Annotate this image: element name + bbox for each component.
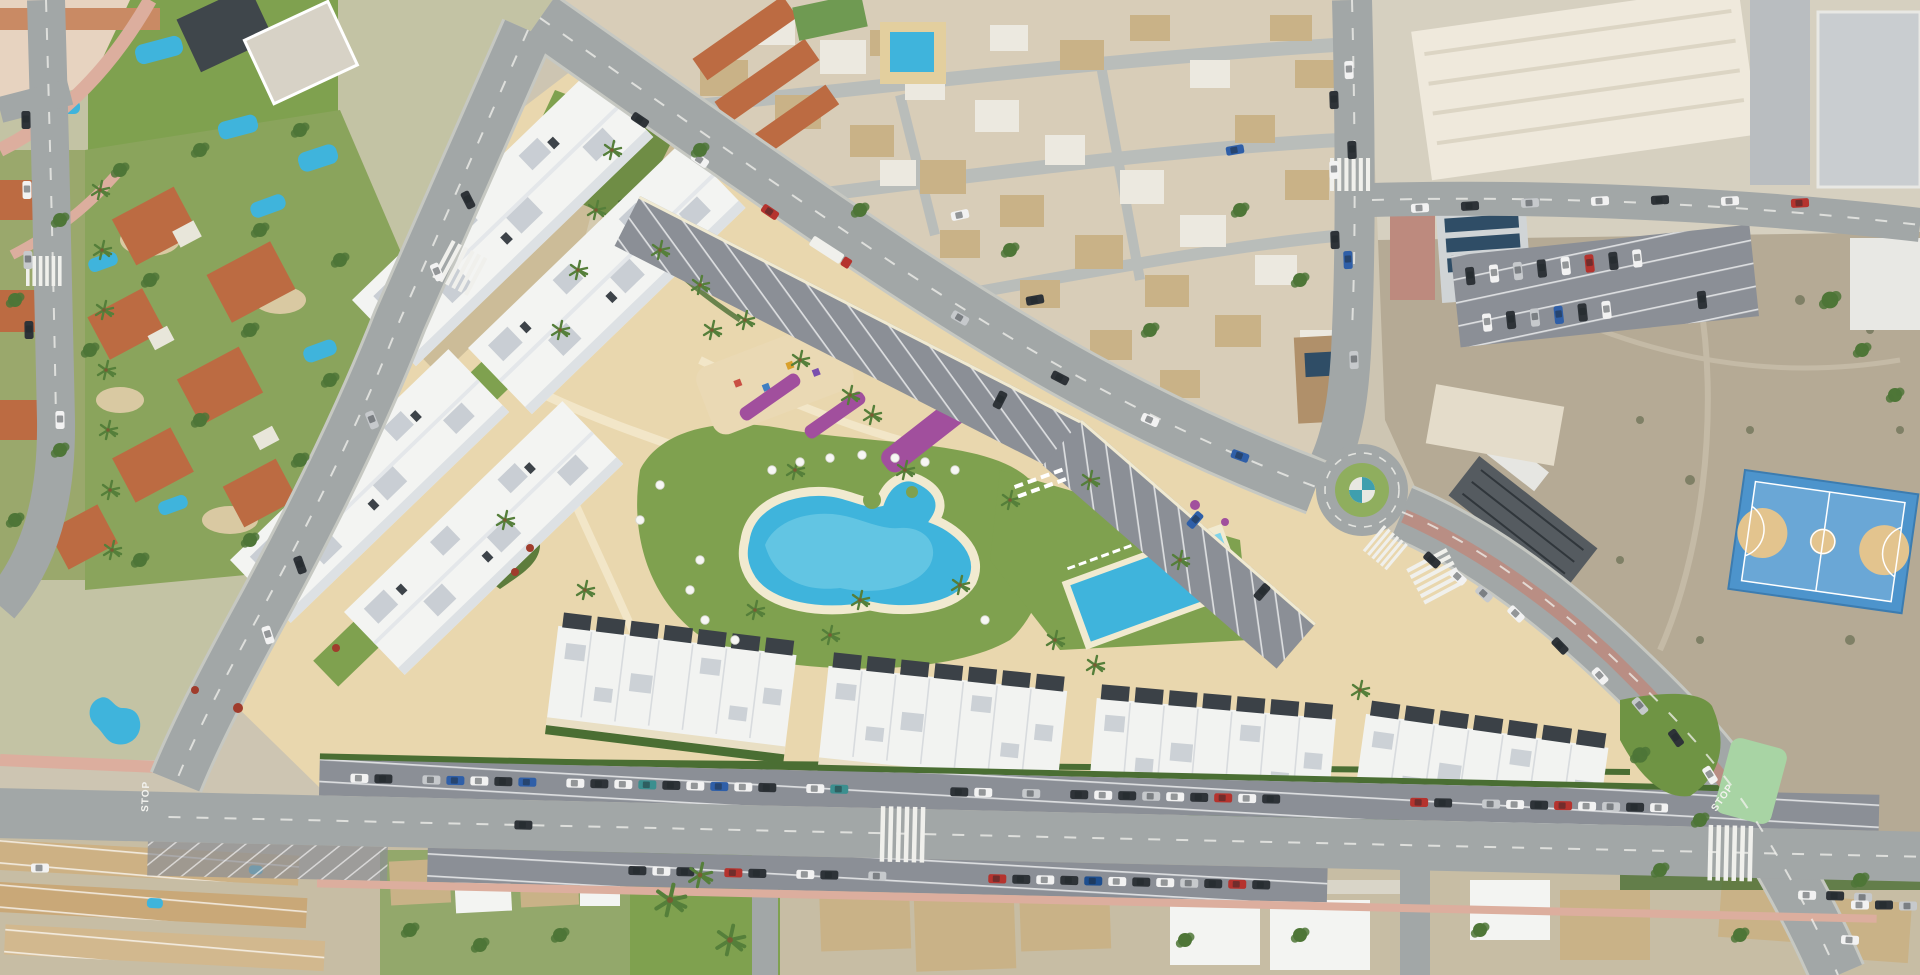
aerial-photo-stage: STOP STOP: [0, 0, 1920, 975]
driving-car: [514, 820, 532, 829]
lagoon-pool: [743, 477, 975, 610]
roundabout: [1316, 444, 1408, 536]
stop-marking-west: STOP: [140, 781, 152, 812]
community-pool: [890, 32, 934, 72]
aerial-photo: STOP STOP: [0, 0, 1920, 975]
sports-court: [1728, 470, 1918, 613]
